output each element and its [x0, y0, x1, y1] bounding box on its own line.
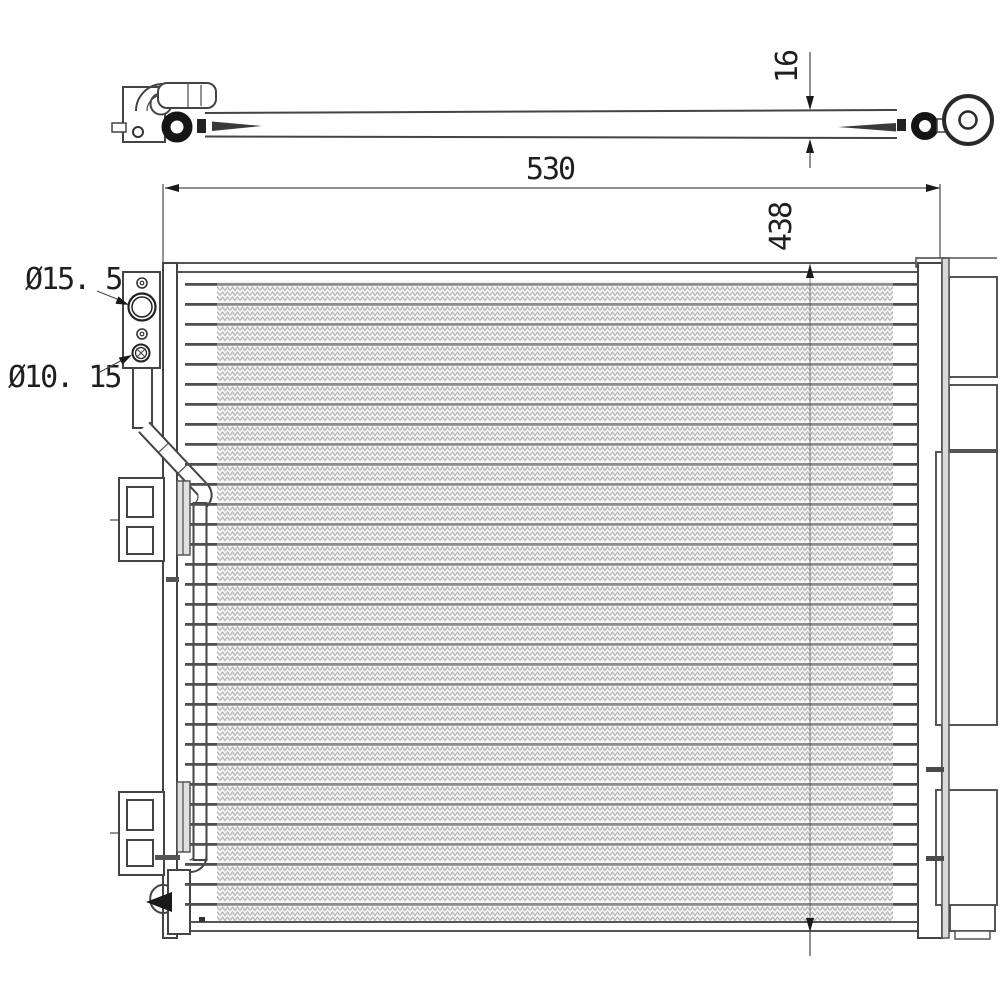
dim438-label: 438	[764, 202, 799, 251]
bracket-hole-1	[127, 487, 153, 517]
drier-section-1	[949, 277, 997, 377]
fitting-block	[158, 83, 216, 108]
bracket-hole-2	[127, 840, 153, 866]
dim16-label: 16	[770, 50, 805, 83]
bottom-header-plate	[177, 922, 918, 931]
port-small-label: Ø10. 15	[8, 360, 120, 395]
condenser-technical-drawing: Ø15. 5 Ø10. 15	[0, 0, 1000, 1000]
mount-stub-upper	[166, 577, 179, 582]
fitting-tab	[112, 123, 126, 132]
mount-stub-lower	[155, 855, 180, 860]
port-large-inner	[132, 297, 152, 317]
condenser-body	[163, 258, 943, 938]
drier-bottom-box	[950, 905, 995, 931]
pipe-upper-segment	[133, 368, 152, 428]
dim530-label: 530	[526, 152, 575, 187]
fitting-tab-bolt	[133, 127, 143, 137]
bolt-hole-bottom-center	[140, 332, 144, 336]
drier-connector-stub-lower	[926, 856, 944, 861]
bracket-hole-2	[127, 527, 153, 554]
pipe-block-right	[897, 119, 906, 131]
end-ring-bore	[960, 112, 977, 129]
port-large-label: Ø15. 5	[25, 262, 121, 297]
drier-connector-stub-upper	[926, 767, 944, 772]
bracket-hole-1	[127, 800, 153, 830]
condenser-core-fins	[217, 281, 893, 921]
bolt-hole-top-center	[140, 281, 144, 285]
drier-tube	[942, 258, 949, 938]
pipe-block-left	[197, 119, 206, 133]
left-side-tank	[163, 263, 177, 938]
drier-bottom-cap	[955, 931, 990, 939]
port-plate	[123, 272, 160, 368]
top-header-plate	[163, 263, 918, 272]
tube-stubs-right	[893, 282, 918, 920]
pipe-collar-right	[915, 116, 935, 136]
drawing-canvas: Ø15. 5 Ø10. 15	[0, 0, 1000, 1000]
drier-section-2	[949, 385, 997, 450]
